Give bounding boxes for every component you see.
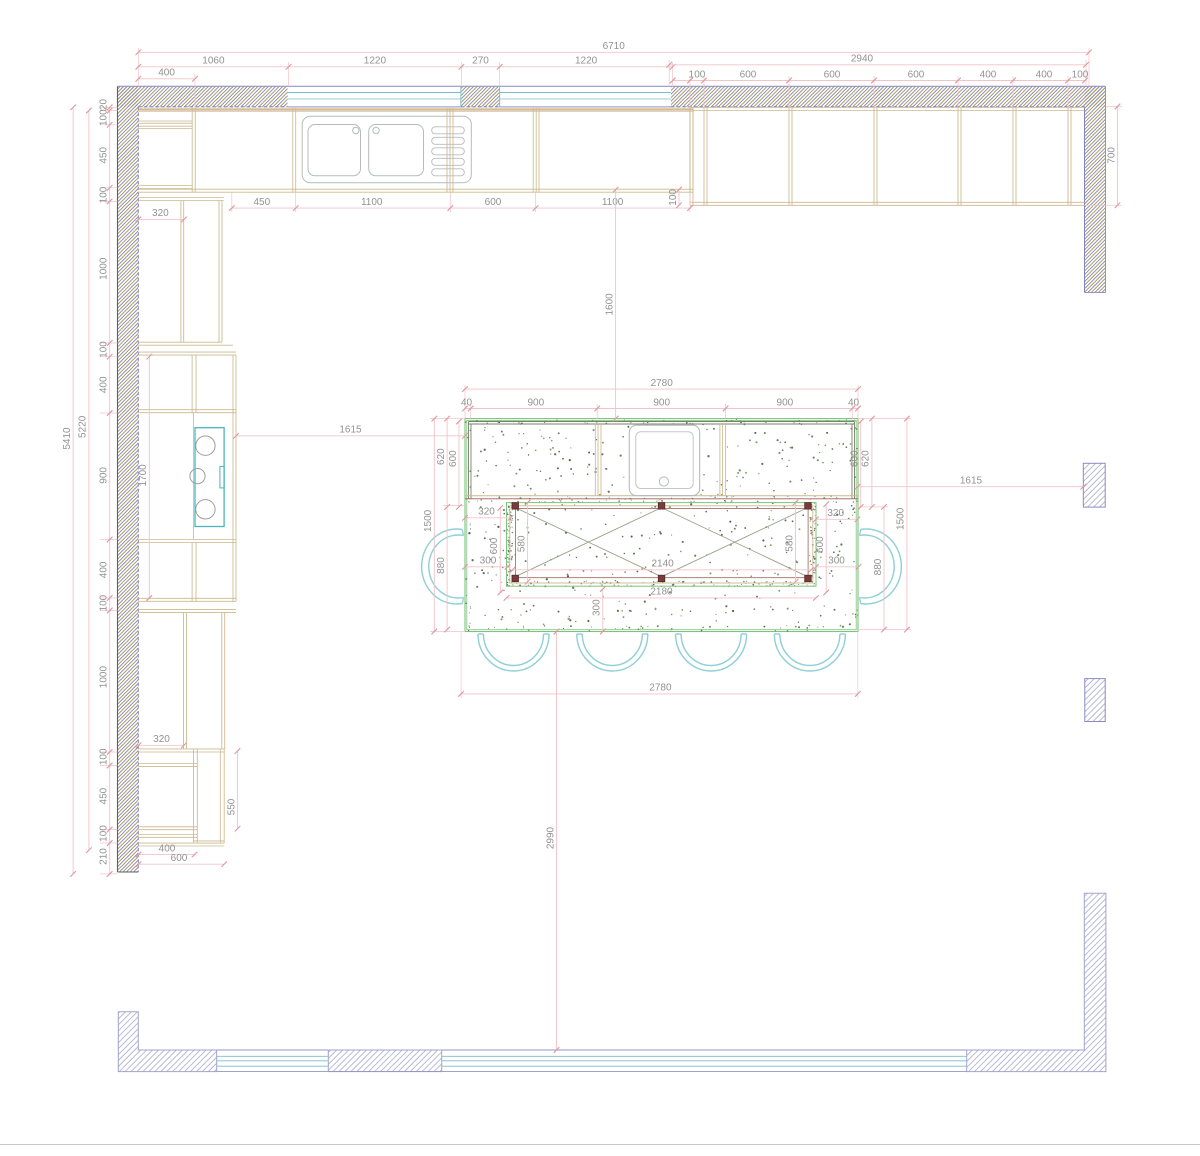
svg-text:900: 900 [527,397,544,408]
svg-text:1060: 1060 [202,56,225,67]
svg-text:1220: 1220 [364,56,387,67]
svg-text:100: 100 [99,109,110,126]
svg-text:600: 600 [815,536,826,553]
svg-text:2140: 2140 [651,559,674,570]
svg-text:2990: 2990 [545,826,556,849]
svg-text:900: 900 [777,397,794,408]
svg-text:2180: 2180 [650,587,673,598]
svg-text:400: 400 [158,68,175,79]
svg-text:210: 210 [99,848,110,865]
svg-text:600: 600 [824,69,841,80]
svg-text:5220: 5220 [78,415,89,438]
svg-text:100: 100 [668,189,679,206]
svg-text:1500: 1500 [896,507,907,530]
svg-text:1100: 1100 [361,197,383,208]
svg-text:1700: 1700 [138,464,149,487]
svg-text:1500: 1500 [423,509,434,532]
svg-text:100: 100 [99,594,110,611]
svg-text:600: 600 [489,537,500,554]
svg-text:6710: 6710 [603,41,626,52]
svg-text:400: 400 [980,69,997,80]
svg-text:580: 580 [784,535,795,552]
svg-text:100: 100 [99,825,110,842]
svg-text:320: 320 [152,208,169,219]
svg-text:620: 620 [436,448,447,465]
svg-text:450: 450 [99,147,110,164]
svg-text:100: 100 [689,69,706,80]
svg-text:620: 620 [861,450,872,467]
svg-text:2780: 2780 [649,683,672,694]
svg-text:600: 600 [850,450,861,467]
svg-text:1000: 1000 [99,666,110,689]
svg-text:1000: 1000 [99,257,110,280]
svg-text:270: 270 [472,56,489,67]
svg-text:600: 600 [171,853,188,864]
svg-text:300: 300 [480,556,497,567]
svg-text:1615: 1615 [339,425,362,436]
svg-text:320: 320 [153,734,170,745]
svg-text:100: 100 [99,186,110,203]
svg-text:600: 600 [485,197,502,208]
svg-text:580: 580 [516,535,527,552]
svg-text:300: 300 [828,556,845,567]
svg-text:100: 100 [99,341,110,358]
svg-text:880: 880 [873,558,884,575]
svg-text:40: 40 [848,397,860,408]
svg-text:900: 900 [653,397,670,408]
svg-text:550: 550 [226,798,237,815]
svg-text:880: 880 [436,557,447,574]
svg-text:5410: 5410 [62,427,73,450]
svg-text:400: 400 [99,561,110,578]
svg-text:20: 20 [99,99,110,111]
svg-text:2940: 2940 [851,54,874,65]
svg-text:700: 700 [1106,147,1117,164]
svg-text:600: 600 [740,69,757,80]
svg-text:450: 450 [253,197,270,208]
svg-text:600: 600 [448,450,459,467]
svg-text:2780: 2780 [651,378,674,389]
svg-text:320: 320 [827,508,844,519]
svg-text:320: 320 [478,507,495,518]
svg-text:1100: 1100 [602,197,624,208]
svg-text:600: 600 [908,69,925,80]
svg-text:400: 400 [1036,69,1053,80]
svg-text:900: 900 [99,467,110,484]
svg-text:1220: 1220 [575,56,598,67]
svg-text:400: 400 [99,376,110,393]
svg-text:450: 450 [99,787,110,804]
svg-text:1600: 1600 [604,293,615,316]
svg-text:300: 300 [592,599,603,616]
svg-text:100: 100 [99,748,110,765]
svg-text:1615: 1615 [960,476,983,487]
svg-text:100: 100 [1072,69,1089,80]
svg-text:40: 40 [461,397,473,408]
